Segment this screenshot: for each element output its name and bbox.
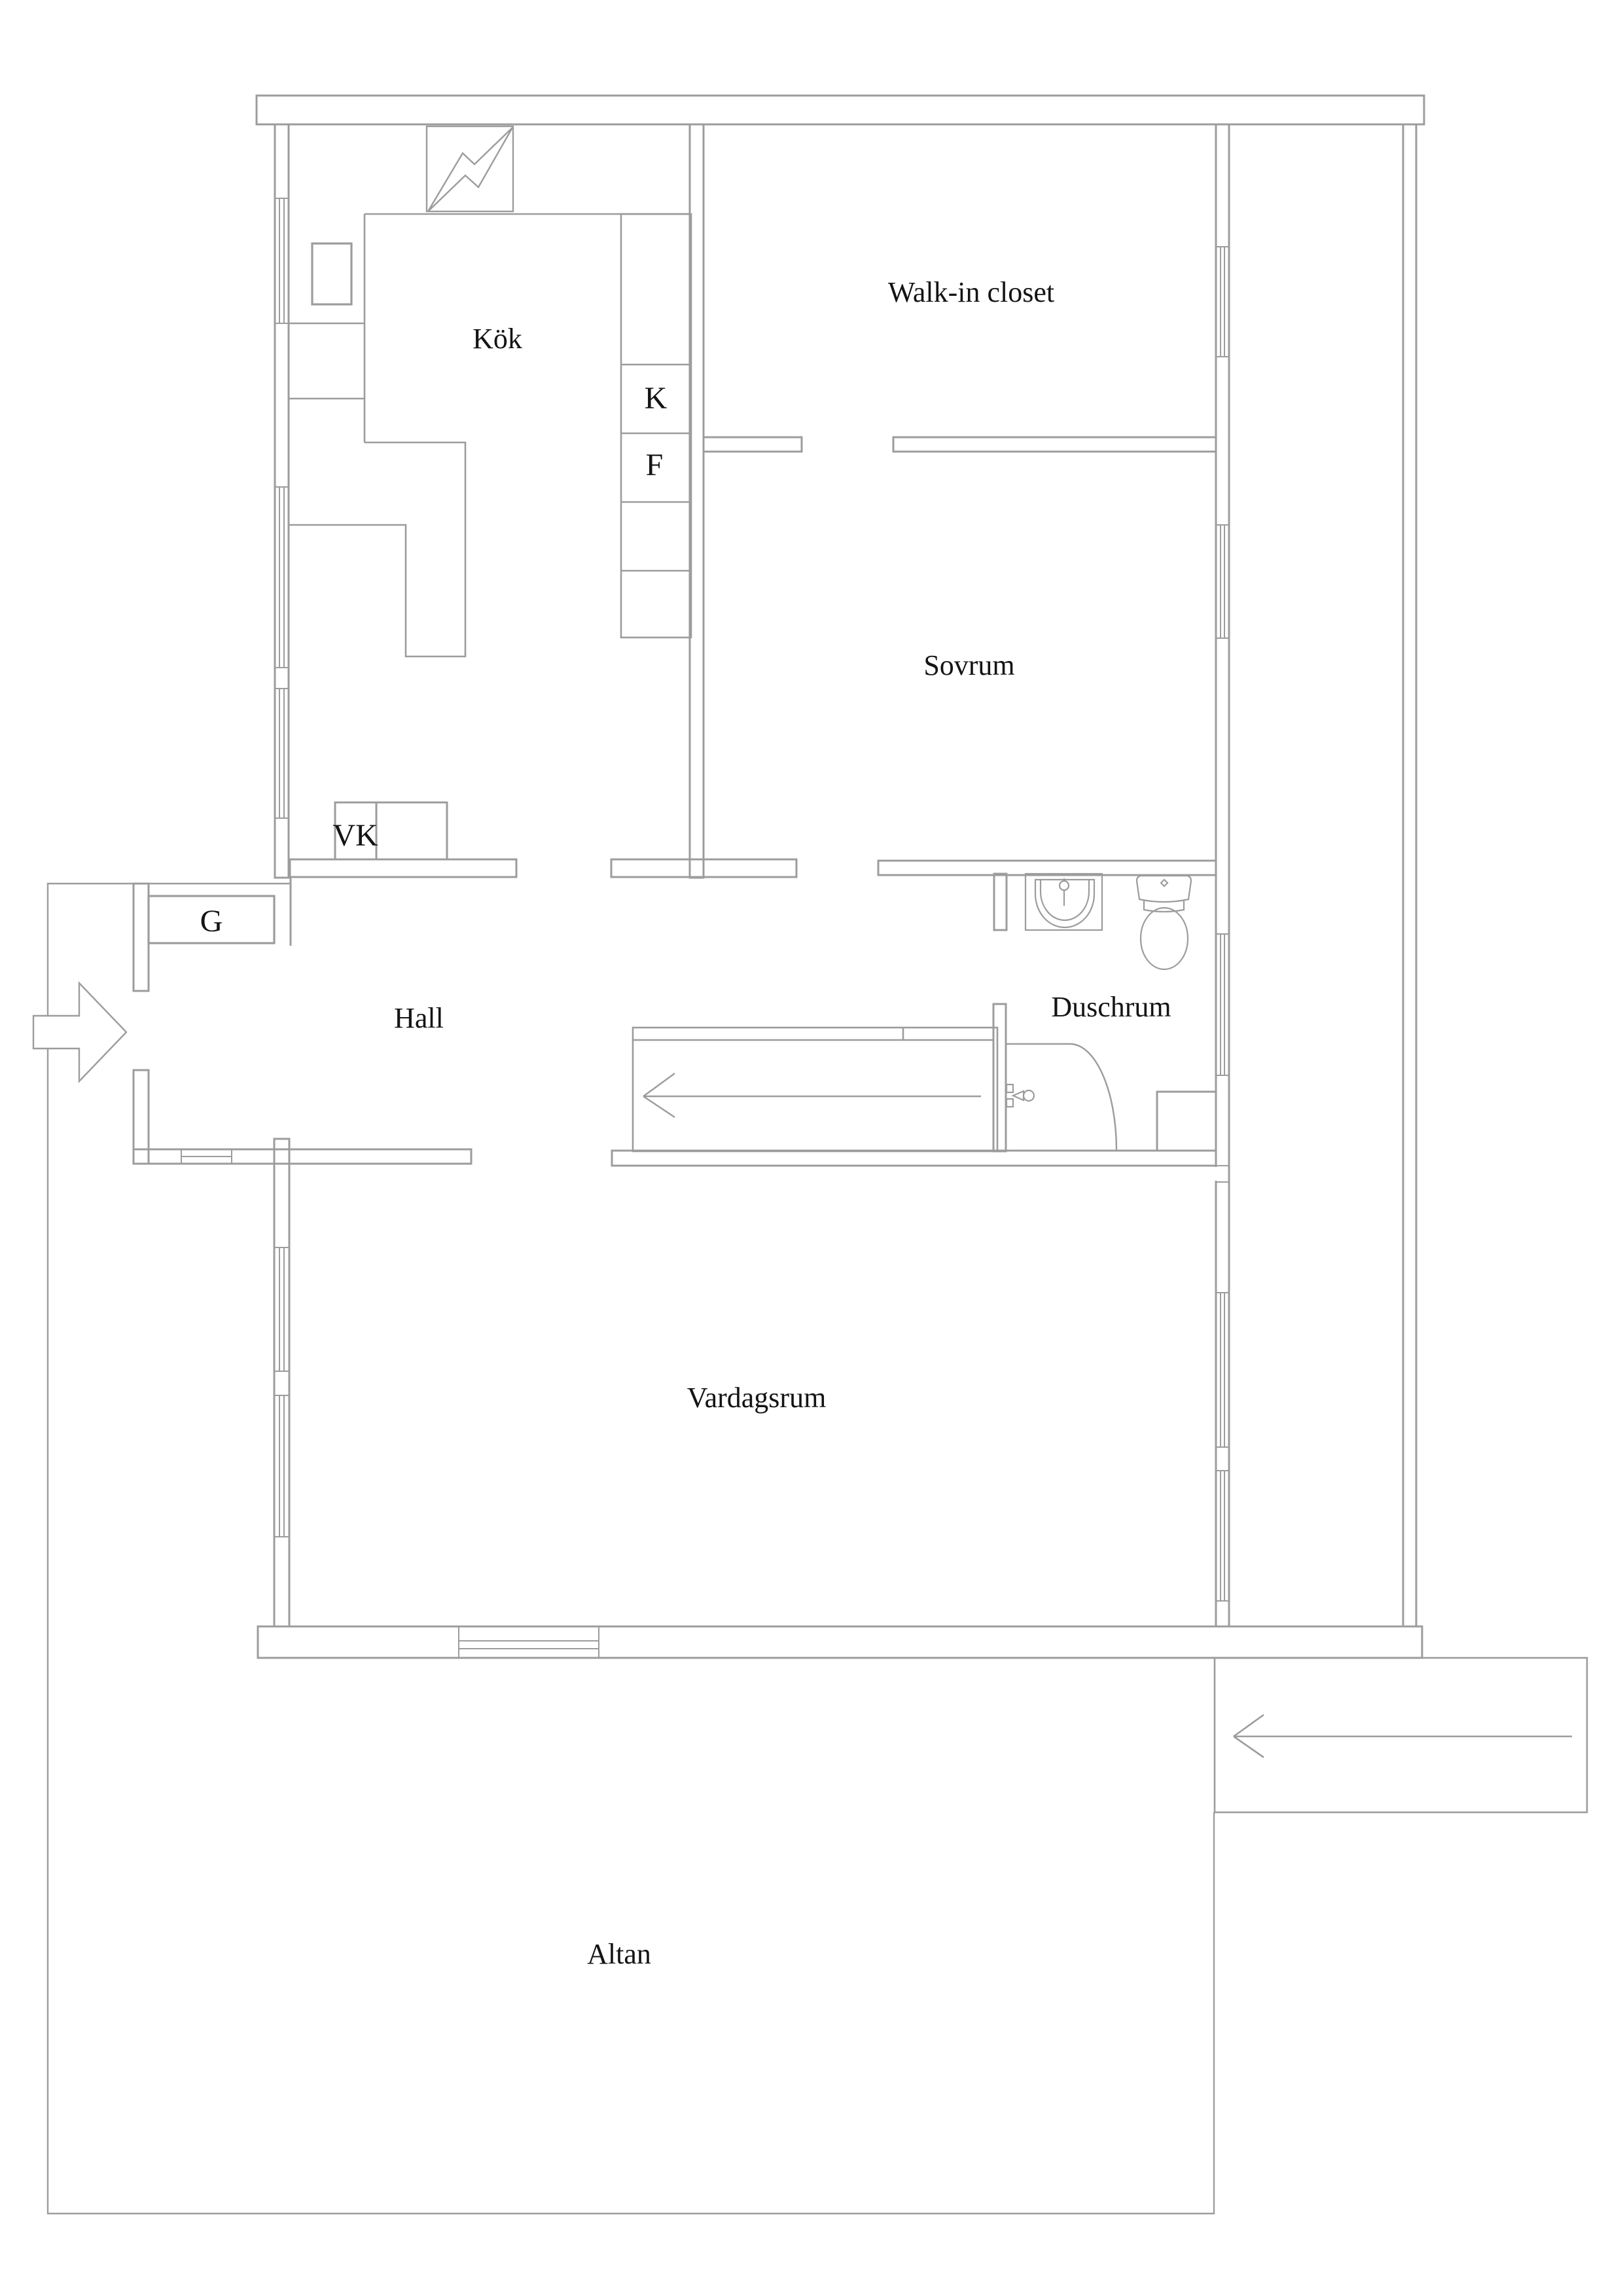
svg-text:Hall: Hall — [394, 1002, 444, 1034]
svg-text:G: G — [200, 904, 223, 939]
svg-text:Sovrum: Sovrum — [923, 649, 1014, 681]
svg-text:Altan: Altan — [587, 1938, 651, 1970]
svg-text:K: K — [645, 381, 668, 416]
svg-text:F: F — [646, 448, 664, 482]
svg-text:Kök: Kök — [473, 323, 522, 355]
svg-text:Vardagsrum: Vardagsrum — [687, 1382, 827, 1414]
svg-text:Duschrum: Duschrum — [1051, 991, 1171, 1023]
svg-text:Walk-in closet: Walk-in closet — [888, 276, 1054, 308]
svg-text:VK: VK — [332, 818, 378, 853]
